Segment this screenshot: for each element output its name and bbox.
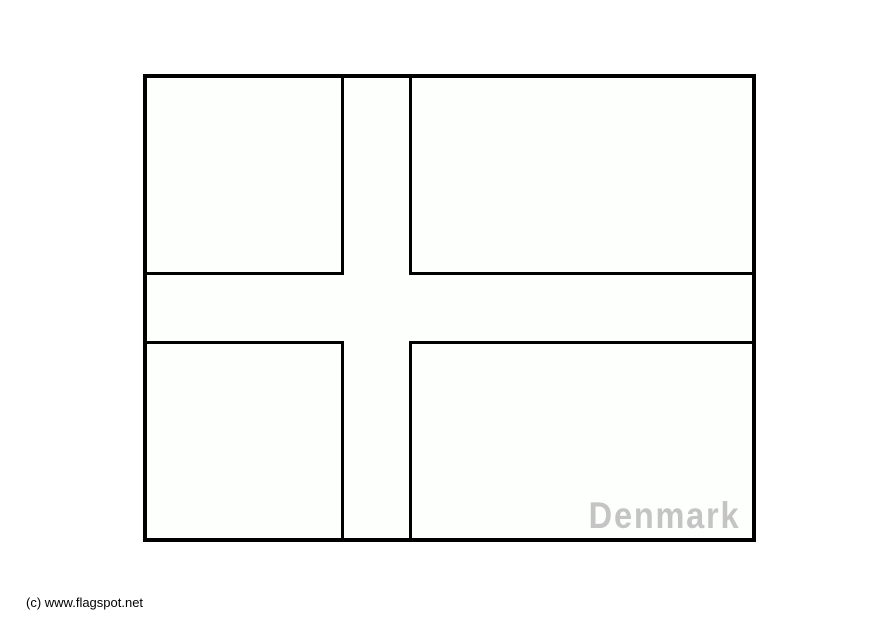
flag-quadrant-top-right [409, 78, 752, 275]
copyright-text: (c) www.flagspot.net [26, 595, 143, 610]
flag-quadrant-bottom-left [147, 341, 344, 538]
denmark-flag-outline: Denmark [143, 74, 756, 542]
country-name-label: Denmark [588, 497, 740, 534]
flag-quadrant-top-left [147, 78, 344, 275]
coloring-page: Denmark (c) www.flagspot.net [0, 0, 875, 620]
